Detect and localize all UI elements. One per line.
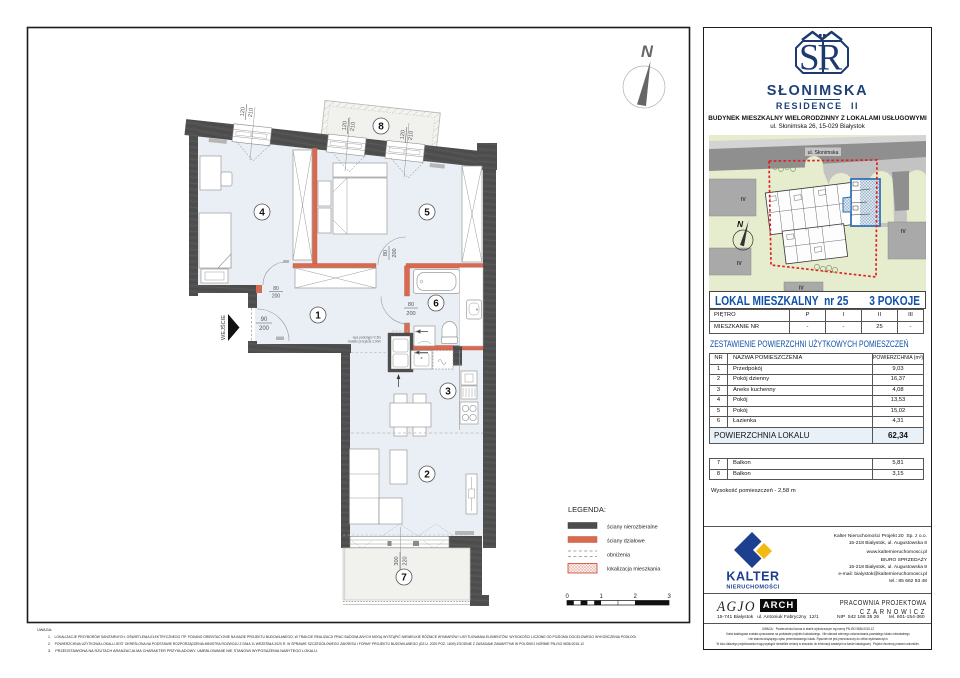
svg-text:80: 80 bbox=[408, 302, 414, 308]
svg-text:IV: IV bbox=[737, 261, 742, 267]
svg-text:220: 220 bbox=[402, 556, 408, 565]
svg-text:lokalizacja mieszkania: lokalizacja mieszkania bbox=[607, 567, 660, 573]
svg-text:300: 300 bbox=[394, 556, 400, 565]
svg-text:światło przejścia 2,00m: światło przejścia 2,00m bbox=[348, 340, 381, 344]
svg-text:ściany nierozbieralne: ściany nierozbieralne bbox=[607, 525, 658, 531]
svg-text:IV: IV bbox=[741, 197, 746, 203]
svg-text:7: 7 bbox=[401, 573, 407, 584]
svg-text:90: 90 bbox=[261, 317, 268, 323]
svg-text:210: 210 bbox=[248, 108, 255, 118]
svg-text:obniżenia: obniżenia bbox=[607, 553, 630, 559]
svg-text:2: 2 bbox=[634, 594, 638, 600]
svg-text:200: 200 bbox=[392, 248, 398, 257]
svg-text:ul. Słonimska: ul. Słonimska bbox=[808, 150, 839, 156]
svg-text:1. LOKALIZACJE PRZYBORÓW SA: 1. LOKALIZACJE PRZYBORÓW SANITARNYCH, OŚ… bbox=[48, 634, 637, 639]
svg-text:ściany działowe: ściany działowe bbox=[607, 539, 645, 545]
svg-text:N: N bbox=[737, 219, 744, 229]
svg-text:0: 0 bbox=[566, 594, 570, 600]
svg-text:1: 1 bbox=[600, 594, 604, 600]
svg-text:4: 4 bbox=[259, 208, 265, 219]
svg-text:IV: IV bbox=[901, 229, 906, 235]
svg-text:200: 200 bbox=[406, 311, 415, 317]
svg-text:NIERUCHOMOŚCI: NIERUCHOMOŚCI bbox=[726, 584, 779, 591]
svg-text:KALTER: KALTER bbox=[726, 570, 779, 584]
svg-text:200: 200 bbox=[272, 294, 281, 300]
svg-text:8: 8 bbox=[378, 122, 384, 133]
svg-text:210: 210 bbox=[350, 122, 357, 132]
svg-text:LEGENDA:: LEGENDA: bbox=[568, 505, 606, 514]
svg-text:3: 3 bbox=[668, 594, 672, 600]
svg-text:2: 2 bbox=[424, 470, 430, 481]
svg-text:R: R bbox=[818, 38, 843, 79]
svg-text:80: 80 bbox=[273, 286, 279, 292]
svg-text:S: S bbox=[799, 38, 820, 79]
svg-text:200: 200 bbox=[259, 326, 270, 332]
svg-text:6: 6 bbox=[433, 299, 439, 310]
svg-text:3: 3 bbox=[445, 387, 451, 398]
svg-text:80: 80 bbox=[383, 250, 389, 256]
svg-text:3. PRZEDSTAWIONA NA RZUTACH: 3. PRZEDSTAWIONA NA RZUTACH ARANŻACJA MA… bbox=[48, 648, 318, 653]
svg-text:WEJŚCIE: WEJŚCIE bbox=[219, 315, 227, 340]
svg-text:1: 1 bbox=[315, 311, 321, 322]
svg-text:2. POWIERZCHNIA UŻYTKOWA LO: 2. POWIERZCHNIA UŻYTKOWA LOKALU JEST OKR… bbox=[48, 641, 584, 646]
svg-text:210: 210 bbox=[408, 131, 415, 141]
svg-text:N: N bbox=[641, 43, 654, 61]
svg-text:UWAGA:: UWAGA: bbox=[37, 628, 52, 632]
svg-text:5: 5 bbox=[424, 208, 430, 219]
